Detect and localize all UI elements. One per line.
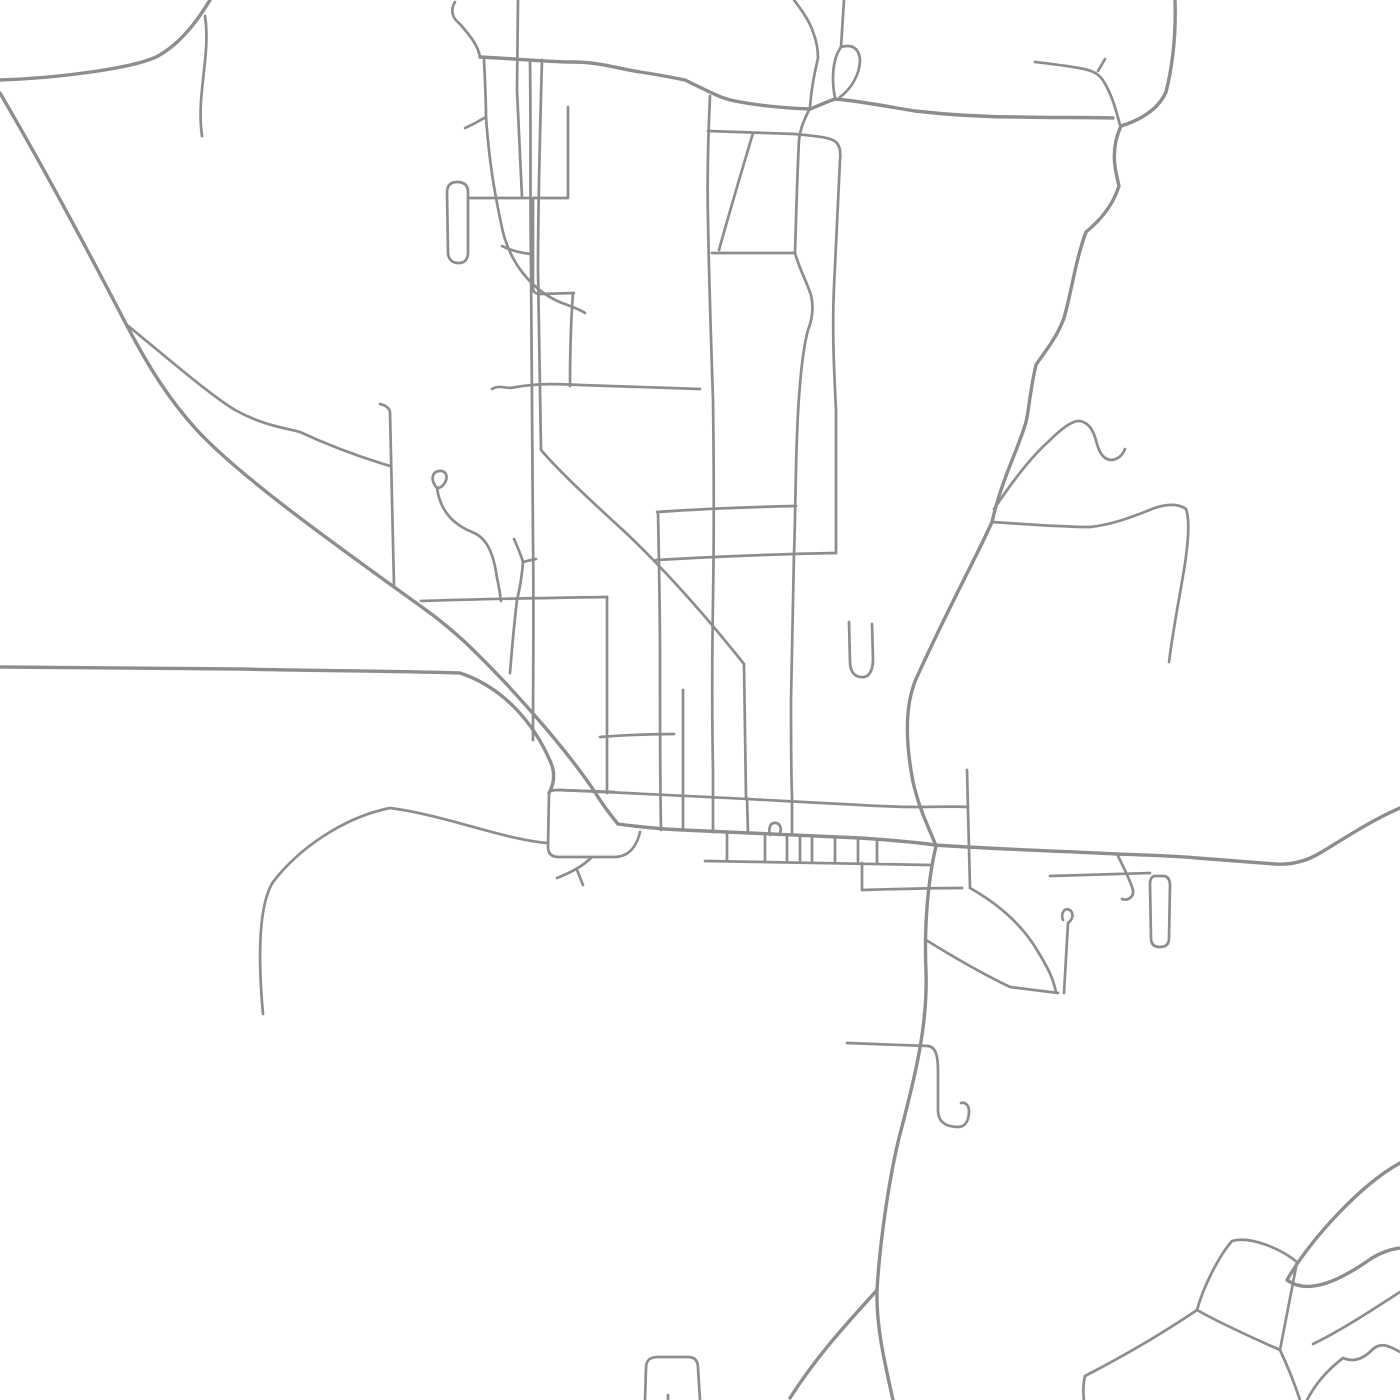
road-loop-stem	[841, 0, 844, 47]
road-se-capsule-street	[1050, 873, 1150, 876]
road-south-road-branch	[790, 1290, 877, 1398]
road-sr-bumpy-road	[1307, 1345, 1400, 1400]
map-canvas	[0, 0, 1400, 1400]
road-west-avenue	[530, 60, 533, 740]
road-nw-corner-road	[0, 0, 210, 80]
road-south-row-street	[705, 861, 930, 865]
road-grid-street-512	[657, 506, 796, 512]
road-network-svg	[0, 0, 1400, 1400]
road-north-west-vertical	[517, 0, 522, 197]
road-main-street	[618, 808, 1400, 864]
road-upper-town-street	[558, 790, 968, 807]
road-nw-stub	[201, 16, 207, 136]
road-block-right-edge	[795, 134, 840, 553]
road-loop-east-side	[840, 46, 860, 97]
road-south-hook	[928, 1046, 969, 1127]
road-vertical-747	[747, 798, 748, 833]
road-wiggle-road	[484, 60, 585, 313]
road-cul-de-sac-u	[849, 622, 873, 677]
road-y-west-tick	[1098, 59, 1105, 71]
road-ne-block-east	[967, 770, 970, 888]
road-long-diagonal	[0, 93, 618, 824]
road-south-road	[877, 846, 936, 1400]
road-loop-west-side	[833, 47, 841, 98]
road-east-loop-road	[992, 505, 1188, 662]
road-ne-squiggle	[994, 421, 1125, 509]
road-hooked-connector	[510, 539, 523, 673]
road-church-street	[791, 0, 818, 833]
road-sr-spur-west	[1083, 1310, 1197, 1400]
road-top-curl	[452, 2, 480, 57]
road-block-step	[616, 832, 640, 857]
road-block-fork-y	[557, 857, 592, 885]
road-southwest-road	[260, 808, 548, 1014]
road-mid-west-street	[492, 384, 700, 389]
road-wiggle-fork	[465, 117, 486, 128]
road-grid-street-600	[421, 597, 607, 601]
road-west-capsule	[447, 182, 468, 263]
road-vertical-390	[380, 404, 394, 585]
road-se-block-curve	[970, 888, 1056, 992]
road-balloon-loop-street	[433, 471, 501, 601]
road-se-block-vertical	[1062, 909, 1072, 993]
road-main-street-squiggle	[1117, 854, 1133, 900]
road-se-block-bottom	[926, 940, 1058, 993]
road-y-west-road	[1035, 62, 1120, 125]
road-north-winding-road	[907, 0, 1175, 846]
road-center-avenue	[708, 96, 714, 832]
road-se-connector	[862, 863, 962, 890]
road-slant-street	[719, 133, 753, 250]
road-grid-street-558	[656, 553, 836, 560]
road-sr-inner-band	[1313, 1292, 1400, 1344]
road-sr-square	[1197, 1240, 1297, 1350]
road-block-west-south	[548, 793, 616, 857]
road-sr-spur-south	[1280, 1350, 1300, 1400]
road-diagonal-fork	[127, 325, 390, 466]
road-top-east-west-road	[480, 57, 1113, 118]
road-west-main-road	[0, 667, 554, 793]
road-grid-street-253-west	[502, 246, 531, 254]
road-south-stub-west	[847, 1043, 928, 1046]
road-grid-street-735	[600, 734, 674, 737]
road-se-capsule	[1150, 876, 1170, 947]
road-south-block-left	[645, 1357, 700, 1400]
road-sr-outer-band	[1287, 1163, 1400, 1286]
